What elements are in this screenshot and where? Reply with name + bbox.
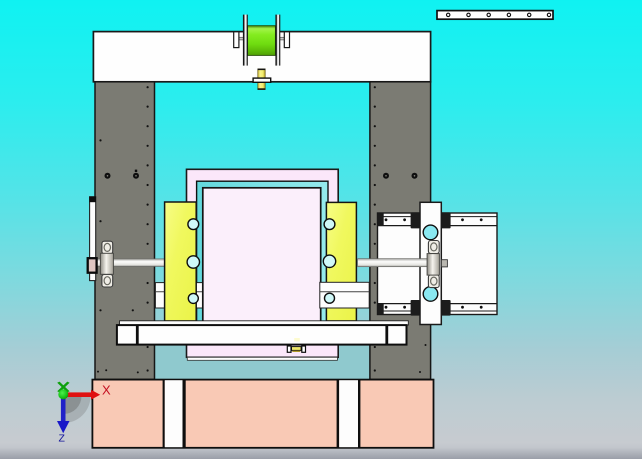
- svg-text:X: X: [102, 383, 111, 398]
- svg-text:Z: Z: [59, 433, 66, 445]
